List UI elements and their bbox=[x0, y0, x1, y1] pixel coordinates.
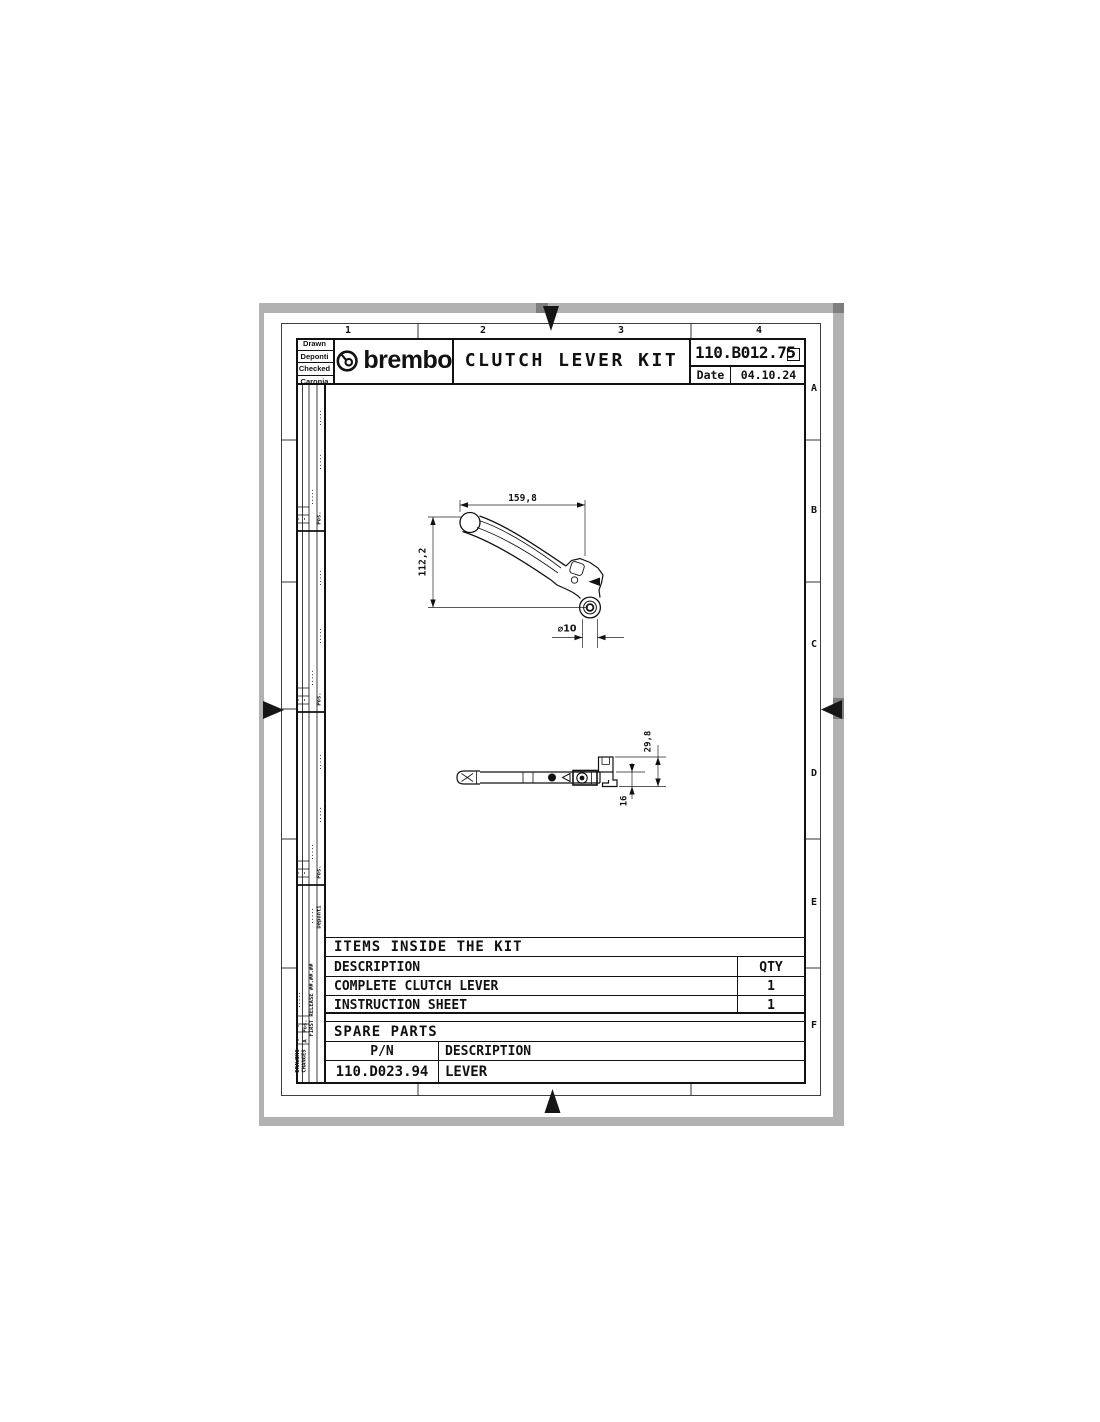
revision-entry-dots: ..... bbox=[317, 628, 323, 645]
revision-dash: - bbox=[296, 1024, 302, 1027]
lever-ball-end bbox=[460, 513, 480, 533]
revision-dash: - bbox=[296, 698, 302, 701]
revision-dash: - bbox=[302, 517, 308, 520]
centering-arrow-left bbox=[263, 701, 284, 719]
centering-arrow-top bbox=[543, 306, 559, 331]
dim-lever-height: 112,2 bbox=[418, 548, 429, 577]
revision-dash: - bbox=[296, 517, 302, 520]
revision-dash: - bbox=[302, 871, 308, 874]
lever-front-view bbox=[460, 513, 603, 618]
revision-entry-dots: ..... bbox=[317, 754, 323, 771]
centering-arrow-right bbox=[821, 700, 842, 719]
dim-thickness: 16 bbox=[620, 796, 630, 807]
revision-pos-label: Pos. bbox=[303, 1019, 309, 1032]
dim-total-height: 29,8 bbox=[644, 731, 654, 753]
side-bracket-foot bbox=[603, 772, 618, 787]
revision-table-label: DRAWING bbox=[295, 1049, 301, 1073]
lever-adjuster-detail bbox=[569, 561, 585, 576]
lever-side-view bbox=[457, 757, 617, 787]
side-view-dim-arrows bbox=[629, 757, 660, 795]
revision-dash: - bbox=[296, 871, 302, 874]
revision-entry-dots: ..... bbox=[309, 844, 315, 861]
revision-pos-label: Pos. bbox=[317, 692, 323, 705]
revision-entry-dots: ..... bbox=[296, 992, 302, 1009]
drawing-sheet-page: 1 2 3 4 A B C D E F Drawn Deponti Checke… bbox=[0, 0, 1100, 1422]
revision-letter: A bbox=[303, 1039, 309, 1043]
front-view-dim-arrows bbox=[430, 502, 605, 640]
front-view-dimension-lines bbox=[428, 500, 624, 648]
revision-entry-dots: ..... bbox=[309, 908, 315, 925]
revision-entry-dots: ..... bbox=[317, 570, 323, 587]
dim-lever-width: 159,8 bbox=[508, 493, 537, 504]
revision-release-note: FIRST RELEASE ##.##.## bbox=[309, 963, 315, 1037]
revision-entry-dots: ..... bbox=[309, 670, 315, 687]
revision-pos-label: Pos. bbox=[317, 865, 323, 878]
revision-entry-dots: ..... bbox=[317, 410, 323, 427]
revision-entry-dots: ..... bbox=[309, 489, 315, 506]
revision-entry-dots: ..... bbox=[317, 454, 323, 471]
dim-pivot-hole: ⌀10 bbox=[558, 624, 577, 635]
revision-entry-dots: ..... bbox=[317, 807, 323, 824]
adjuster-index-mark bbox=[589, 578, 601, 587]
centering-marks bbox=[263, 306, 842, 1113]
side-view-dimension-lines bbox=[615, 745, 666, 799]
revision-pos-label: Pos. bbox=[317, 511, 323, 524]
revision-dash: - bbox=[302, 698, 308, 701]
linework-overlay: ..... ..... ..... Pos. - - ..... ..... .… bbox=[0, 0, 1100, 1422]
revision-table-label: CHANGES bbox=[302, 1049, 308, 1072]
zone-ticks bbox=[281, 323, 821, 1096]
revision-author: Deponti bbox=[317, 905, 323, 929]
revision-dash: - bbox=[296, 1038, 302, 1041]
centering-arrow-bottom bbox=[545, 1089, 561, 1113]
side-pivot-pin bbox=[548, 774, 556, 782]
